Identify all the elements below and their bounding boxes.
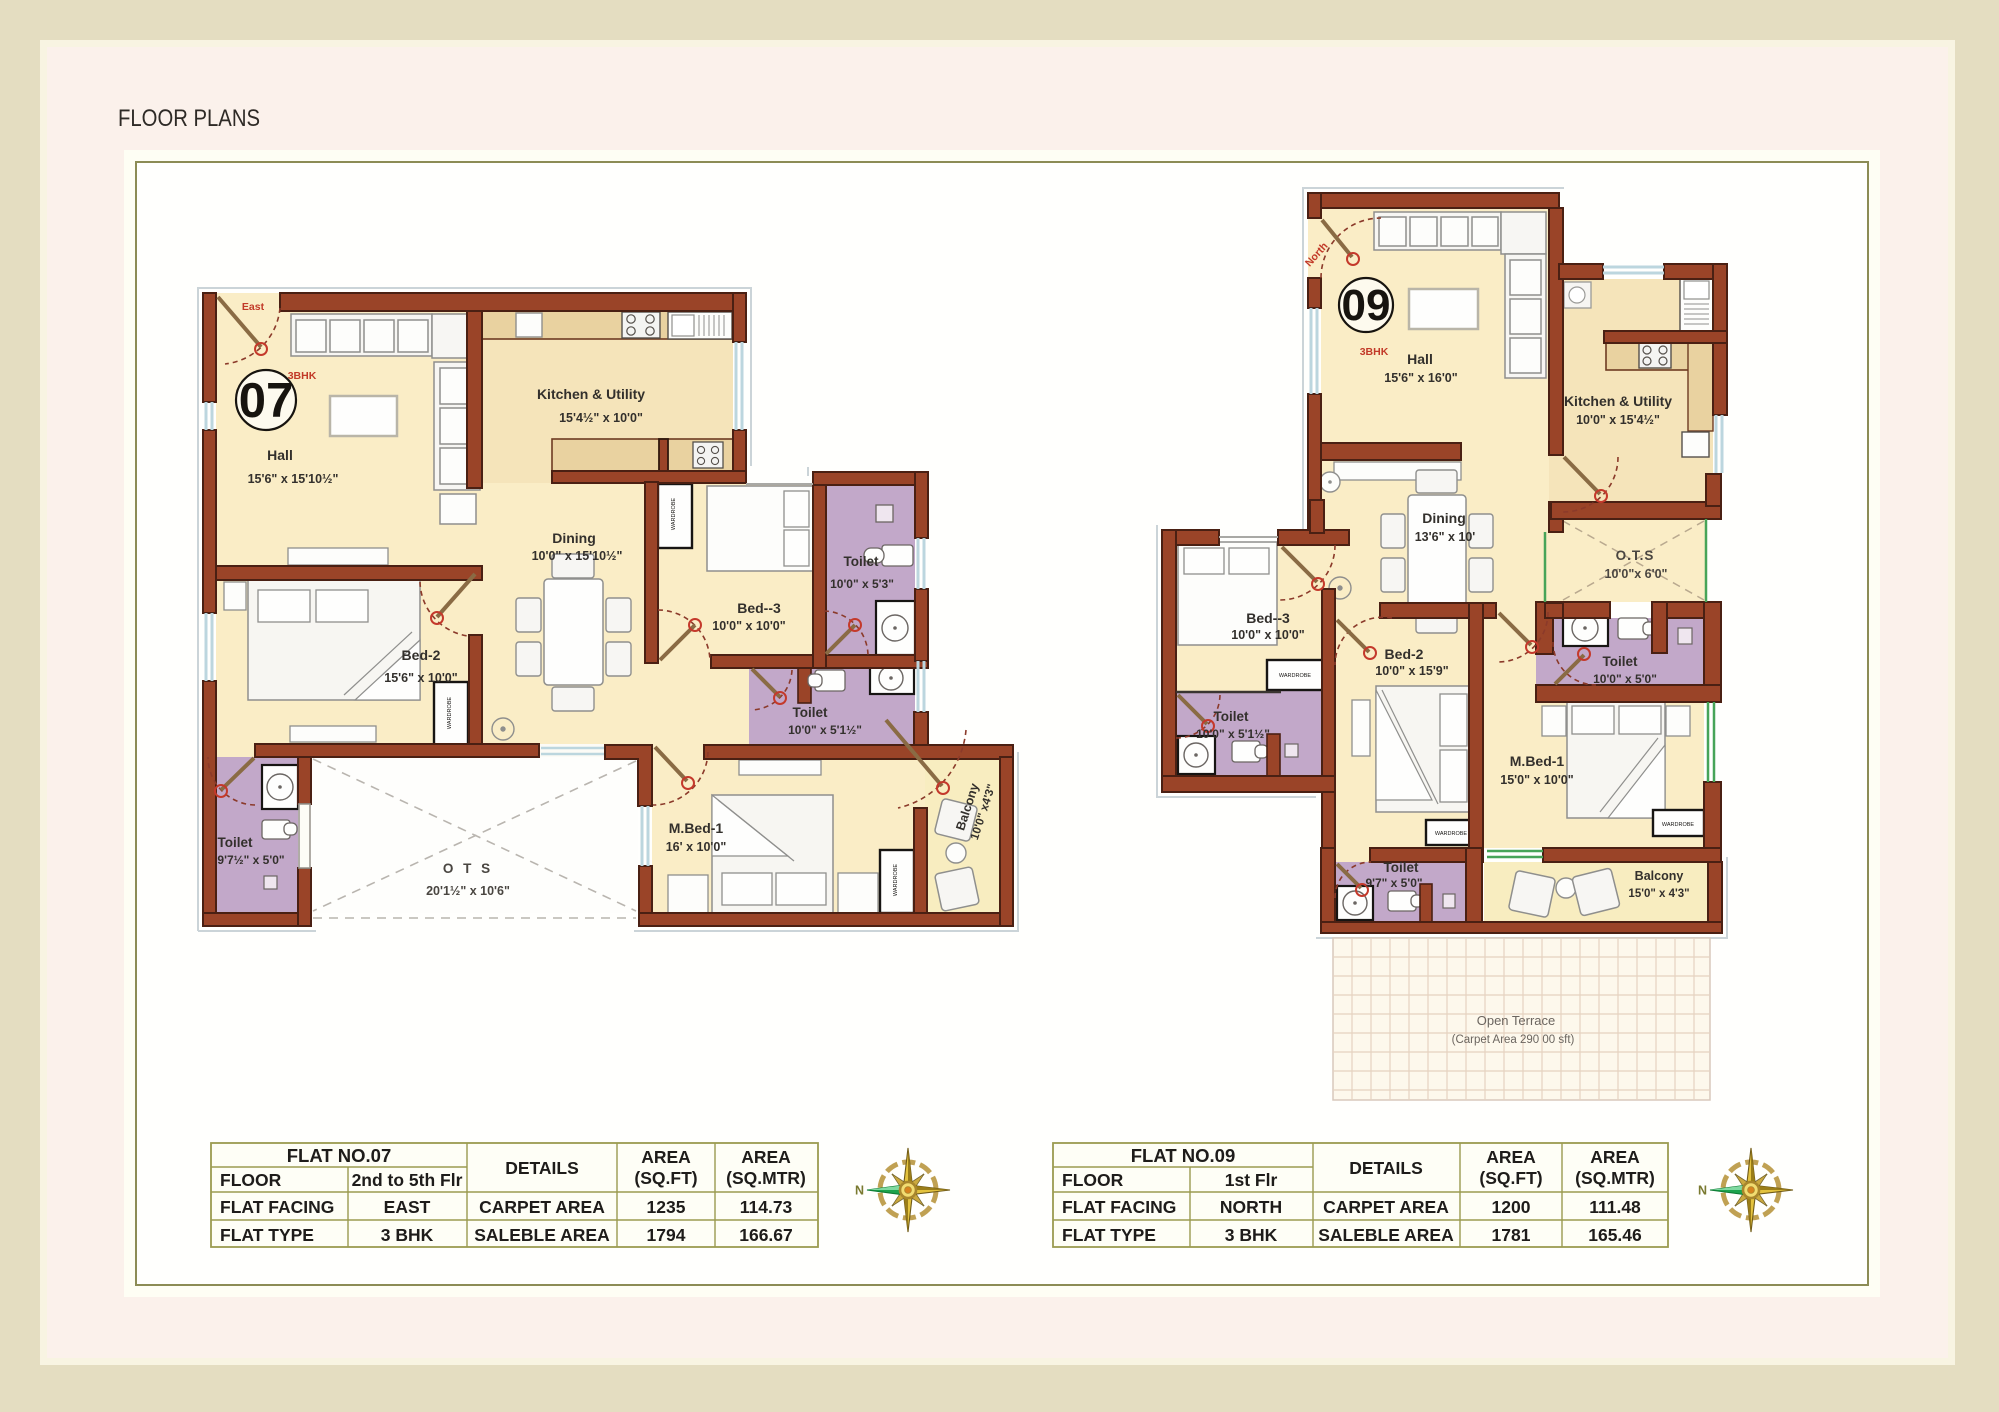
svg-text:1200: 1200 [1492, 1197, 1531, 1217]
svg-text:(SQ.FT): (SQ.FT) [1479, 1168, 1542, 1188]
svg-text:FLAT TYPE: FLAT TYPE [220, 1225, 314, 1245]
svg-text:1st Flr: 1st Flr [1225, 1170, 1278, 1190]
svg-text:FLOOR: FLOOR [1062, 1170, 1124, 1190]
svg-text:DETAILS: DETAILS [505, 1158, 579, 1178]
svg-text:10'0" x 5'0": 10'0" x 5'0" [1593, 672, 1657, 686]
svg-text:10'0" x 5'1½": 10'0" x 5'1½" [788, 723, 862, 737]
svg-text:FLAT NO.07: FLAT NO.07 [287, 1145, 392, 1166]
svg-text:FLAT TYPE: FLAT TYPE [1062, 1225, 1156, 1245]
svg-text:10'0" x 5'3": 10'0" x 5'3" [830, 577, 894, 591]
svg-text:3 BHK: 3 BHK [381, 1225, 434, 1245]
svg-text:15'4½" x 10'0": 15'4½" x 10'0" [559, 411, 643, 425]
svg-text:20'1½" x 10'6": 20'1½" x 10'6" [426, 884, 510, 898]
svg-text:10'0" x 15'10½": 10'0" x 15'10½" [532, 549, 623, 563]
svg-text:AREA: AREA [641, 1147, 691, 1167]
svg-text:2nd to 5th Flr: 2nd to 5th Flr [352, 1170, 463, 1190]
svg-text:N: N [1698, 1184, 1707, 1198]
svg-text:DETAILS: DETAILS [1349, 1158, 1423, 1178]
svg-text:15'0" x 10'0": 15'0" x 10'0" [1500, 773, 1573, 787]
svg-text:AREA: AREA [1486, 1147, 1536, 1167]
svg-text:Toilet: Toilet [218, 835, 254, 850]
svg-text:WARDROBE: WARDROBE [671, 498, 677, 531]
svg-text:10'0" x 15'9": 10'0" x 15'9" [1375, 664, 1448, 678]
svg-text:10'0" x 10'0": 10'0" x 10'0" [1231, 628, 1304, 642]
svg-text:15'6" x 10'0": 15'6" x 10'0" [384, 671, 457, 685]
svg-text:FLAT FACING: FLAT FACING [1062, 1197, 1176, 1217]
svg-text:111.48: 111.48 [1589, 1197, 1641, 1217]
svg-text:Toilet: Toilet [1384, 860, 1420, 875]
svg-text:13'6" x 10': 13'6" x 10' [1415, 530, 1476, 544]
svg-text:FLOOR PLANS: FLOOR PLANS [118, 105, 260, 132]
svg-text:M.Bed-1: M.Bed-1 [1510, 753, 1565, 769]
svg-text:FLAT NO.09: FLAT NO.09 [1131, 1145, 1236, 1166]
svg-text:WARDROBE: WARDROBE [1662, 822, 1695, 828]
svg-text:(SQ.FT): (SQ.FT) [634, 1168, 697, 1188]
svg-text:07: 07 [239, 374, 294, 428]
svg-text:(Carpet Area 290 00 sft): (Carpet Area 290 00 sft) [1452, 1034, 1575, 1046]
svg-text:Kitchen & Utility: Kitchen & Utility [537, 386, 645, 402]
svg-text:15'6" x 16'0": 15'6" x 16'0" [1384, 371, 1457, 385]
svg-text:3BHK: 3BHK [288, 370, 317, 382]
svg-text:Open Terrace: Open Terrace [1477, 1013, 1556, 1028]
svg-text:FLAT FACING: FLAT FACING [220, 1197, 334, 1217]
svg-text:NORTH: NORTH [1220, 1197, 1282, 1217]
svg-text:WARDROBE: WARDROBE [447, 697, 453, 730]
svg-text:Hall: Hall [1407, 351, 1433, 367]
svg-text:WARDROBE: WARDROBE [1435, 831, 1468, 837]
svg-text:WARDROBE: WARDROBE [1279, 673, 1312, 679]
svg-text:9'7½" x 5'0": 9'7½" x 5'0" [217, 853, 284, 867]
svg-text:Bed-2: Bed-2 [402, 647, 441, 663]
svg-text:1235: 1235 [647, 1197, 686, 1217]
svg-text:3 BHK: 3 BHK [1225, 1225, 1278, 1245]
svg-text:(SQ.MTR): (SQ.MTR) [1575, 1168, 1655, 1188]
svg-text:Bed-2: Bed-2 [1385, 646, 1424, 662]
svg-text:9'7" x 5'0": 9'7" x 5'0" [1365, 876, 1422, 890]
svg-text:Bed--3: Bed--3 [737, 600, 781, 616]
svg-text:Toilet: Toilet [1603, 654, 1639, 669]
svg-text:SALEBLE AREA: SALEBLE AREA [1318, 1225, 1454, 1245]
svg-text:15'0" x 4'3": 15'0" x 4'3" [1628, 888, 1689, 900]
svg-text:(SQ.MTR): (SQ.MTR) [726, 1168, 806, 1188]
svg-text:Hall: Hall [267, 447, 293, 463]
svg-text:10'0" x 10'0": 10'0" x 10'0" [712, 619, 785, 633]
svg-text:N: N [855, 1184, 864, 1198]
svg-text:10'0"x 6'0": 10'0"x 6'0" [1605, 567, 1668, 581]
svg-text:AREA: AREA [741, 1147, 791, 1167]
svg-text:CARPET AREA: CARPET AREA [1323, 1197, 1449, 1217]
svg-text:1781: 1781 [1492, 1225, 1531, 1245]
svg-text:O.T.S: O.T.S [1616, 548, 1655, 563]
svg-text:09: 09 [1342, 281, 1391, 330]
svg-text:M.Bed-1: M.Bed-1 [669, 820, 724, 836]
svg-text:AREA: AREA [1590, 1147, 1640, 1167]
svg-text:1794: 1794 [647, 1225, 686, 1245]
svg-text:15'6" x 15'10½": 15'6" x 15'10½" [248, 472, 339, 486]
svg-text:Toilet: Toilet [844, 554, 880, 569]
svg-text:166.67: 166.67 [739, 1225, 793, 1245]
svg-text:SALEBLE AREA: SALEBLE AREA [474, 1225, 610, 1245]
svg-text:CARPET AREA: CARPET AREA [479, 1197, 605, 1217]
svg-text:Dining: Dining [1422, 510, 1466, 526]
svg-text:165.46: 165.46 [1588, 1225, 1642, 1245]
svg-text:East: East [242, 301, 265, 313]
svg-text:16' x 10'0": 16' x 10'0" [666, 840, 727, 854]
svg-text:Toilet: Toilet [1214, 709, 1250, 724]
svg-text:10'0" x 5'1½": 10'0" x 5'1½" [1196, 727, 1270, 741]
svg-text:Kitchen & Utility: Kitchen & Utility [1564, 393, 1672, 409]
svg-text:114.73: 114.73 [740, 1197, 793, 1217]
svg-text:O T S: O T S [443, 861, 493, 876]
svg-text:Toilet: Toilet [793, 705, 829, 720]
svg-text:3BHK: 3BHK [1360, 346, 1389, 358]
svg-text:Balcony: Balcony [1635, 869, 1684, 883]
svg-text:EAST: EAST [384, 1197, 431, 1217]
svg-text:WARDROBE: WARDROBE [893, 864, 899, 897]
svg-text:10'0" x 15'4½": 10'0" x 15'4½" [1576, 413, 1660, 427]
svg-text:FLOOR: FLOOR [220, 1170, 282, 1190]
svg-text:Dining: Dining [552, 530, 596, 546]
svg-text:Bed--3: Bed--3 [1246, 610, 1290, 626]
